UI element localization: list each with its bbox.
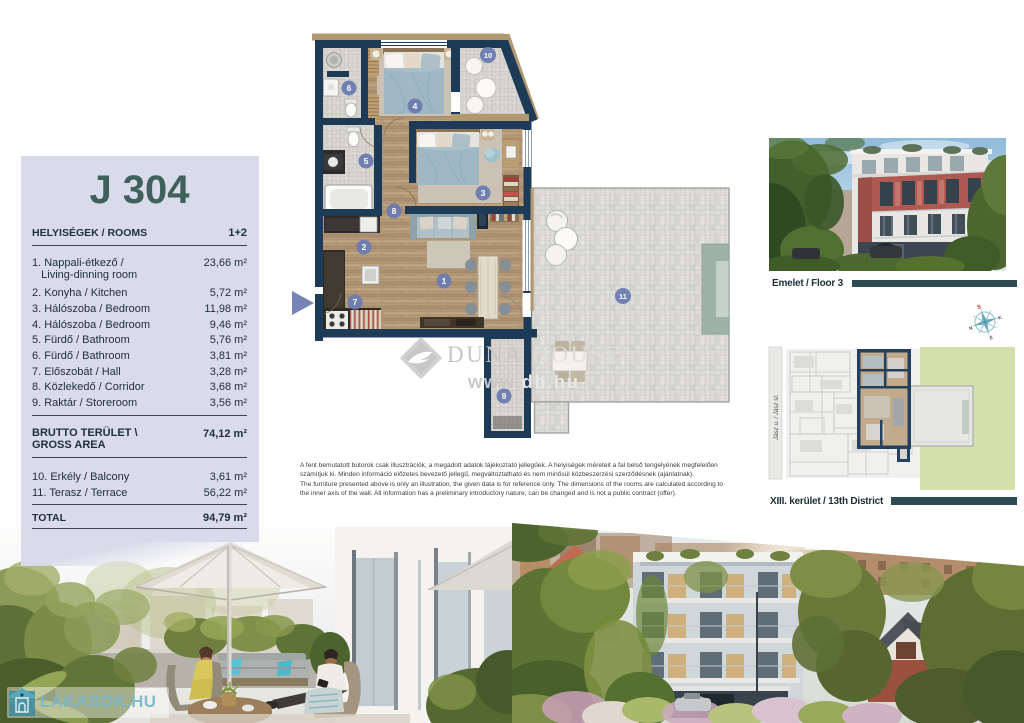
svg-text:8: 8 xyxy=(392,206,397,216)
svg-text:Jász u. / Jász st.: Jász u. / Jász st. xyxy=(773,394,780,441)
svg-text:11: 11 xyxy=(619,292,627,301)
svg-text:7: 7 xyxy=(353,297,358,307)
svg-text:5: 5 xyxy=(364,156,369,166)
svg-text:S: S xyxy=(977,304,983,311)
svg-text:6: 6 xyxy=(347,83,352,93)
svg-text:4: 4 xyxy=(413,101,418,111)
svg-text:K: K xyxy=(998,315,1003,321)
svg-text:2: 2 xyxy=(362,242,367,252)
svg-text:10: 10 xyxy=(484,51,492,60)
svg-text:3: 3 xyxy=(481,188,486,198)
svg-text:1: 1 xyxy=(442,276,447,286)
